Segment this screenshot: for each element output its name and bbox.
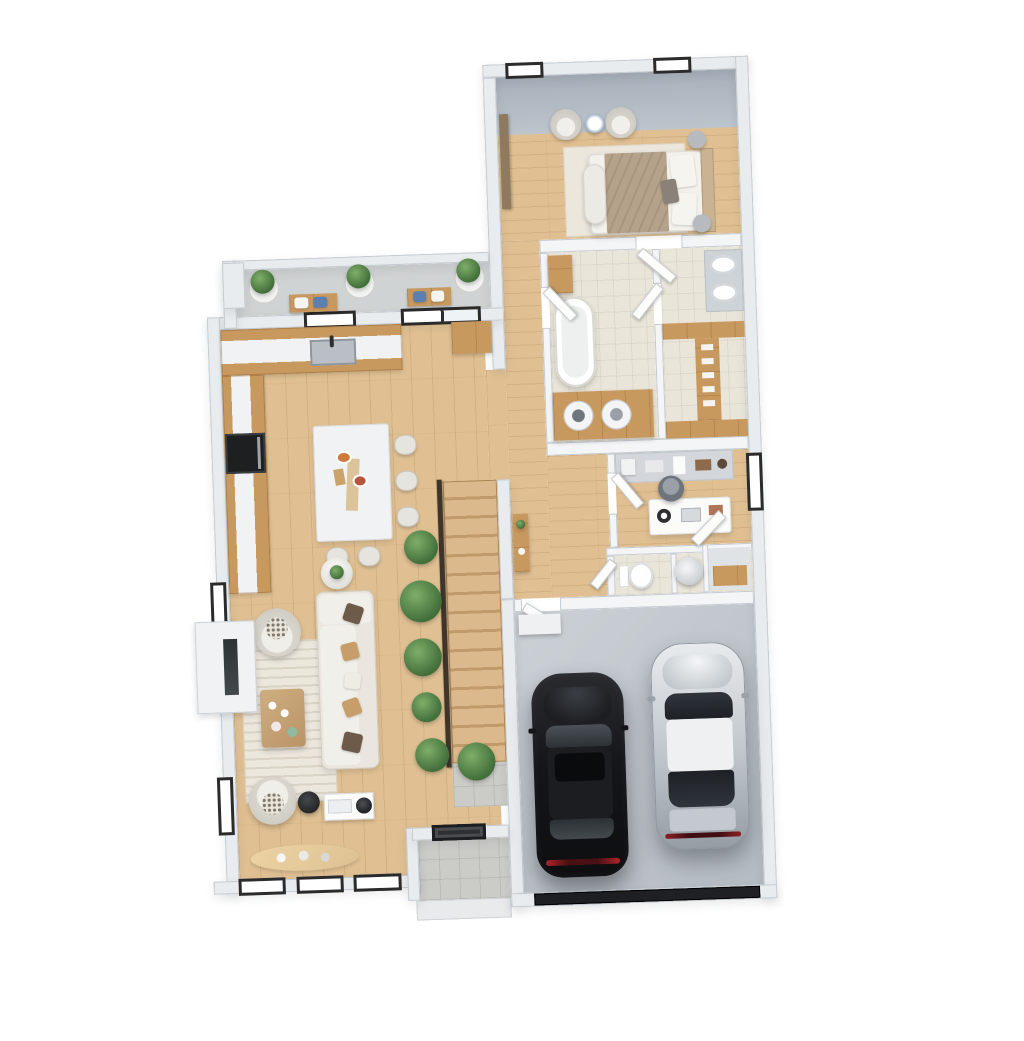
kitchen-faucet: [330, 335, 334, 347]
living-window-bottom-1: [238, 877, 286, 896]
bench-item-1: [621, 459, 636, 475]
bench-decor-1: [277, 853, 286, 862]
headphones: [657, 509, 671, 523]
bench-decor-2: [298, 850, 308, 860]
living-window-left-2: [217, 777, 235, 836]
vanity-sink-1: [710, 255, 737, 274]
sofa-pillow-5: [341, 731, 364, 754]
console-tray: [328, 799, 352, 814]
shoe-pair-4: [703, 386, 715, 392]
staircase: [443, 480, 507, 764]
bench2-cushion-blue: [413, 291, 426, 302]
shoe-pair-1: [701, 344, 713, 350]
kitchen-tall-cabinet: [451, 321, 492, 354]
coffee-table: [260, 689, 306, 749]
tea-cup-1: [268, 701, 276, 709]
dining-chair-bottom-2: [358, 546, 381, 567]
sedan-mirror-left: [647, 696, 655, 701]
laptop: [681, 508, 701, 523]
silver-sedan: [649, 641, 750, 850]
vanity-counter: [704, 249, 744, 312]
sectional-sofa: [315, 590, 379, 770]
porch-step: [416, 897, 512, 920]
vanity-sink-2: [711, 283, 738, 302]
laundry-counter: [553, 389, 655, 440]
sedan-roof: [666, 718, 734, 772]
hall-console-table: [513, 514, 530, 572]
dining-hall-opening-floor: [486, 369, 510, 480]
wall-office-left-b: [609, 513, 618, 547]
toilet-bowl: [629, 562, 654, 589]
suv-hood: [543, 686, 612, 724]
suv-roof: [547, 746, 613, 820]
media-console: [324, 792, 375, 821]
living-window-bottom-3: [353, 873, 402, 892]
fireplace: [194, 620, 257, 714]
toilet: [619, 562, 654, 589]
tea-cup-2: [281, 709, 289, 717]
dining-table: [313, 423, 393, 542]
toilet-tank: [619, 565, 630, 587]
dining-chair-right-2: [395, 470, 418, 491]
shoe-pair-5: [703, 400, 715, 406]
bench-cushion-white: [294, 297, 308, 308]
armchair1-pattern-pillow: [265, 617, 288, 640]
console-vase: [518, 548, 525, 555]
bedroom-window-2: [653, 57, 692, 74]
suv-rear-glass: [550, 818, 615, 840]
bed-blanket: [604, 152, 669, 234]
suv-mirror-right: [620, 725, 628, 730]
floorplan: [0, 0, 1024, 1041]
bench-item-2: [645, 460, 663, 473]
mud-bench-shelf: [713, 565, 748, 586]
patio-bench-2: [407, 287, 452, 307]
bench2-cushion-white: [431, 290, 444, 301]
side-table-plant: [330, 565, 344, 579]
bench-item-3: [673, 456, 686, 474]
front-door: [432, 823, 487, 841]
bedroom-window-1: [505, 62, 544, 79]
dryer: [601, 399, 632, 430]
closet-shelf-bottom: [666, 419, 749, 439]
black-suv: [530, 671, 629, 878]
fireplace-firebox: [223, 639, 239, 695]
speaker: [356, 797, 373, 814]
garage-entry-step: [518, 614, 561, 635]
living-window-bottom-2: [296, 875, 344, 894]
dining-chair-right-1: [394, 434, 417, 455]
suv-sunroof: [554, 752, 605, 782]
suv-mirror-left: [528, 728, 536, 733]
sedan-mirror-right: [741, 693, 749, 698]
kitchen-counter-left-run: [222, 375, 272, 594]
patio-pillar: [222, 262, 246, 309]
sedan-windshield: [664, 692, 733, 720]
washer: [563, 400, 594, 431]
armchair2-pattern-pillow: [261, 792, 284, 815]
bed-foot-bench: [583, 164, 607, 225]
bench-cushion-blue: [313, 296, 327, 307]
table-plate-2: [354, 476, 365, 485]
wall-bedroom-bottom-b: [681, 233, 741, 248]
bench-decor-3: [321, 853, 330, 862]
bench-item-5: [717, 459, 727, 469]
sofa-pillow-3: [344, 672, 362, 690]
office-window: [746, 452, 764, 511]
table-board: [333, 468, 346, 485]
mud-bench: [708, 547, 751, 590]
shoe-pair-3: [702, 372, 714, 378]
sedan-trunk: [669, 808, 736, 832]
tea-pot: [271, 721, 281, 731]
bench-item-4: [695, 459, 711, 471]
console-plant: [516, 520, 525, 529]
table-succulent: [287, 727, 297, 737]
closet-shelf-column: [695, 338, 722, 421]
sofa-pillow-2: [340, 641, 361, 662]
sedan-hood: [662, 654, 733, 690]
closet-shelf-top: [662, 321, 745, 340]
suv-windshield: [545, 724, 612, 748]
wall-oven: [225, 433, 266, 474]
patio-bench-1: [289, 293, 338, 313]
oven-handle: [257, 437, 261, 469]
shoe-pair-2: [702, 358, 714, 364]
porch-floor: [418, 837, 511, 900]
dining-chair-right-3: [397, 506, 420, 527]
sedan-rear-glass: [668, 770, 735, 808]
kitchen-sink: [310, 338, 357, 366]
